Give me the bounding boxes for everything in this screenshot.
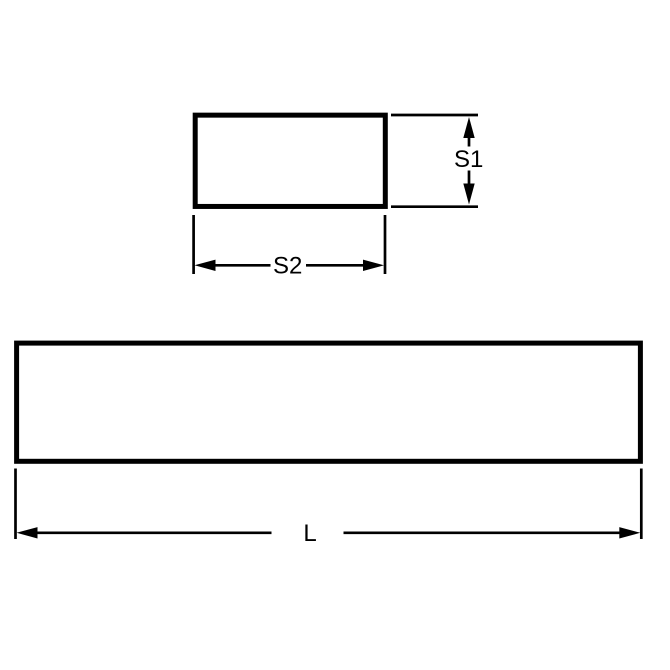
svg-text:S1: S1 — [454, 146, 483, 173]
svg-text:S2: S2 — [273, 252, 302, 279]
svg-text:L: L — [303, 520, 316, 547]
